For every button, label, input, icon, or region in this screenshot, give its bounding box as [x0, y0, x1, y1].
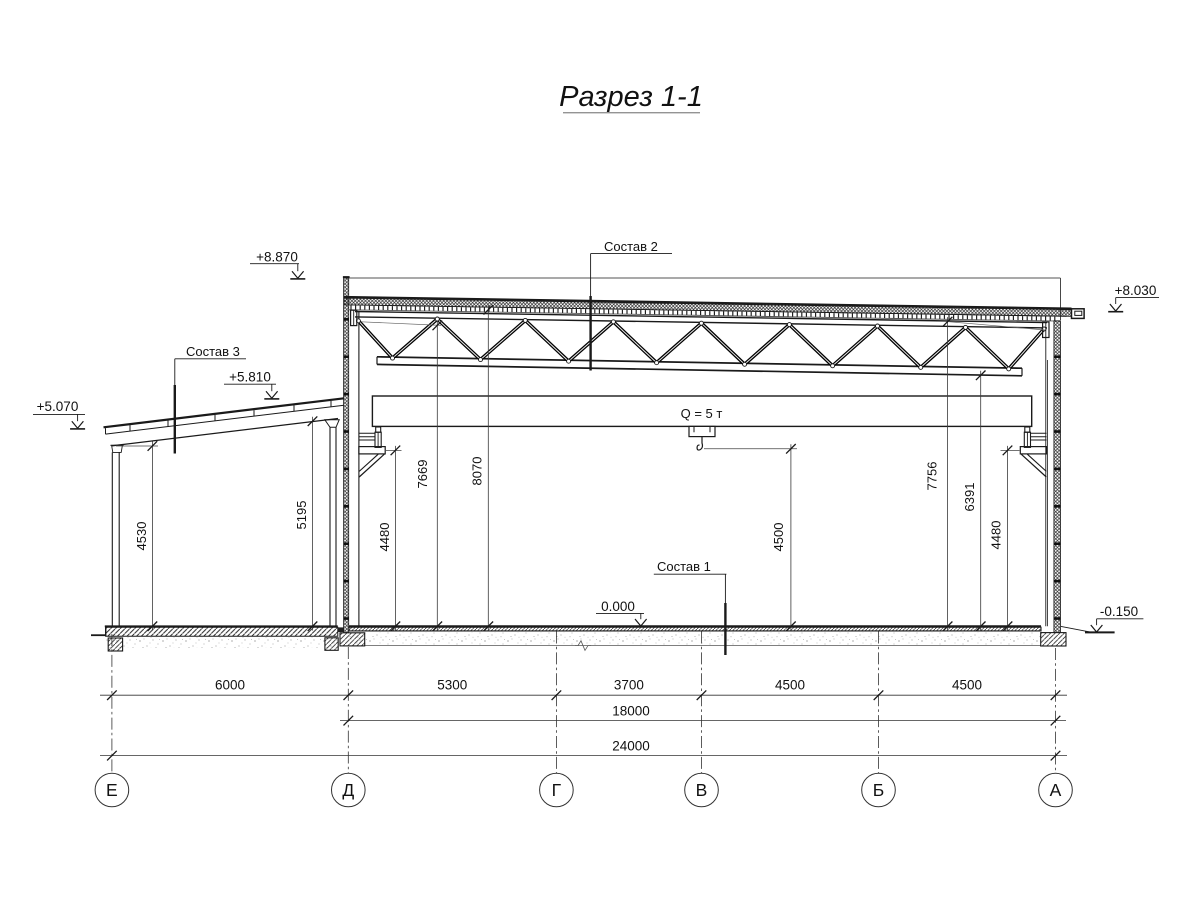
svg-text:7669: 7669	[415, 460, 430, 489]
svg-text:5195: 5195	[294, 501, 309, 530]
svg-text:24000: 24000	[612, 739, 650, 754]
svg-text:Состав 2: Состав 2	[604, 239, 658, 254]
svg-text:Разрез 1-1: Разрез 1-1	[559, 81, 703, 113]
svg-text:8070: 8070	[470, 457, 485, 486]
svg-text:3700: 3700	[614, 678, 644, 693]
svg-text:+5.810: +5.810	[229, 369, 271, 384]
svg-text:Состав 3: Состав 3	[186, 344, 240, 359]
svg-text:4530: 4530	[134, 522, 149, 551]
svg-text:18000: 18000	[612, 704, 650, 719]
svg-text:4500: 4500	[775, 678, 805, 693]
svg-text:-0.150: -0.150	[1100, 604, 1138, 619]
svg-text:6000: 6000	[215, 678, 245, 693]
svg-text:Е: Е	[106, 780, 118, 800]
svg-text:В: В	[696, 780, 708, 800]
svg-text:Г: Г	[552, 780, 562, 800]
svg-text:+5.070: +5.070	[37, 399, 79, 414]
svg-text:7756: 7756	[925, 462, 940, 491]
svg-text:+8.870: +8.870	[256, 250, 298, 265]
svg-text:Q = 5 т: Q = 5 т	[681, 406, 723, 421]
svg-text:Б: Б	[873, 780, 884, 800]
svg-text:5300: 5300	[437, 678, 467, 693]
svg-text:4480: 4480	[377, 523, 392, 552]
svg-text:6391: 6391	[962, 483, 977, 512]
svg-text:А: А	[1050, 780, 1062, 800]
svg-text:Д: Д	[342, 780, 354, 800]
svg-text:+8.030: +8.030	[1115, 283, 1157, 298]
svg-text:4500: 4500	[771, 523, 786, 552]
svg-text:0.000: 0.000	[601, 599, 635, 614]
svg-text:4500: 4500	[952, 678, 982, 693]
svg-text:4480: 4480	[988, 521, 1003, 550]
svg-text:Состав 1: Состав 1	[657, 559, 711, 574]
